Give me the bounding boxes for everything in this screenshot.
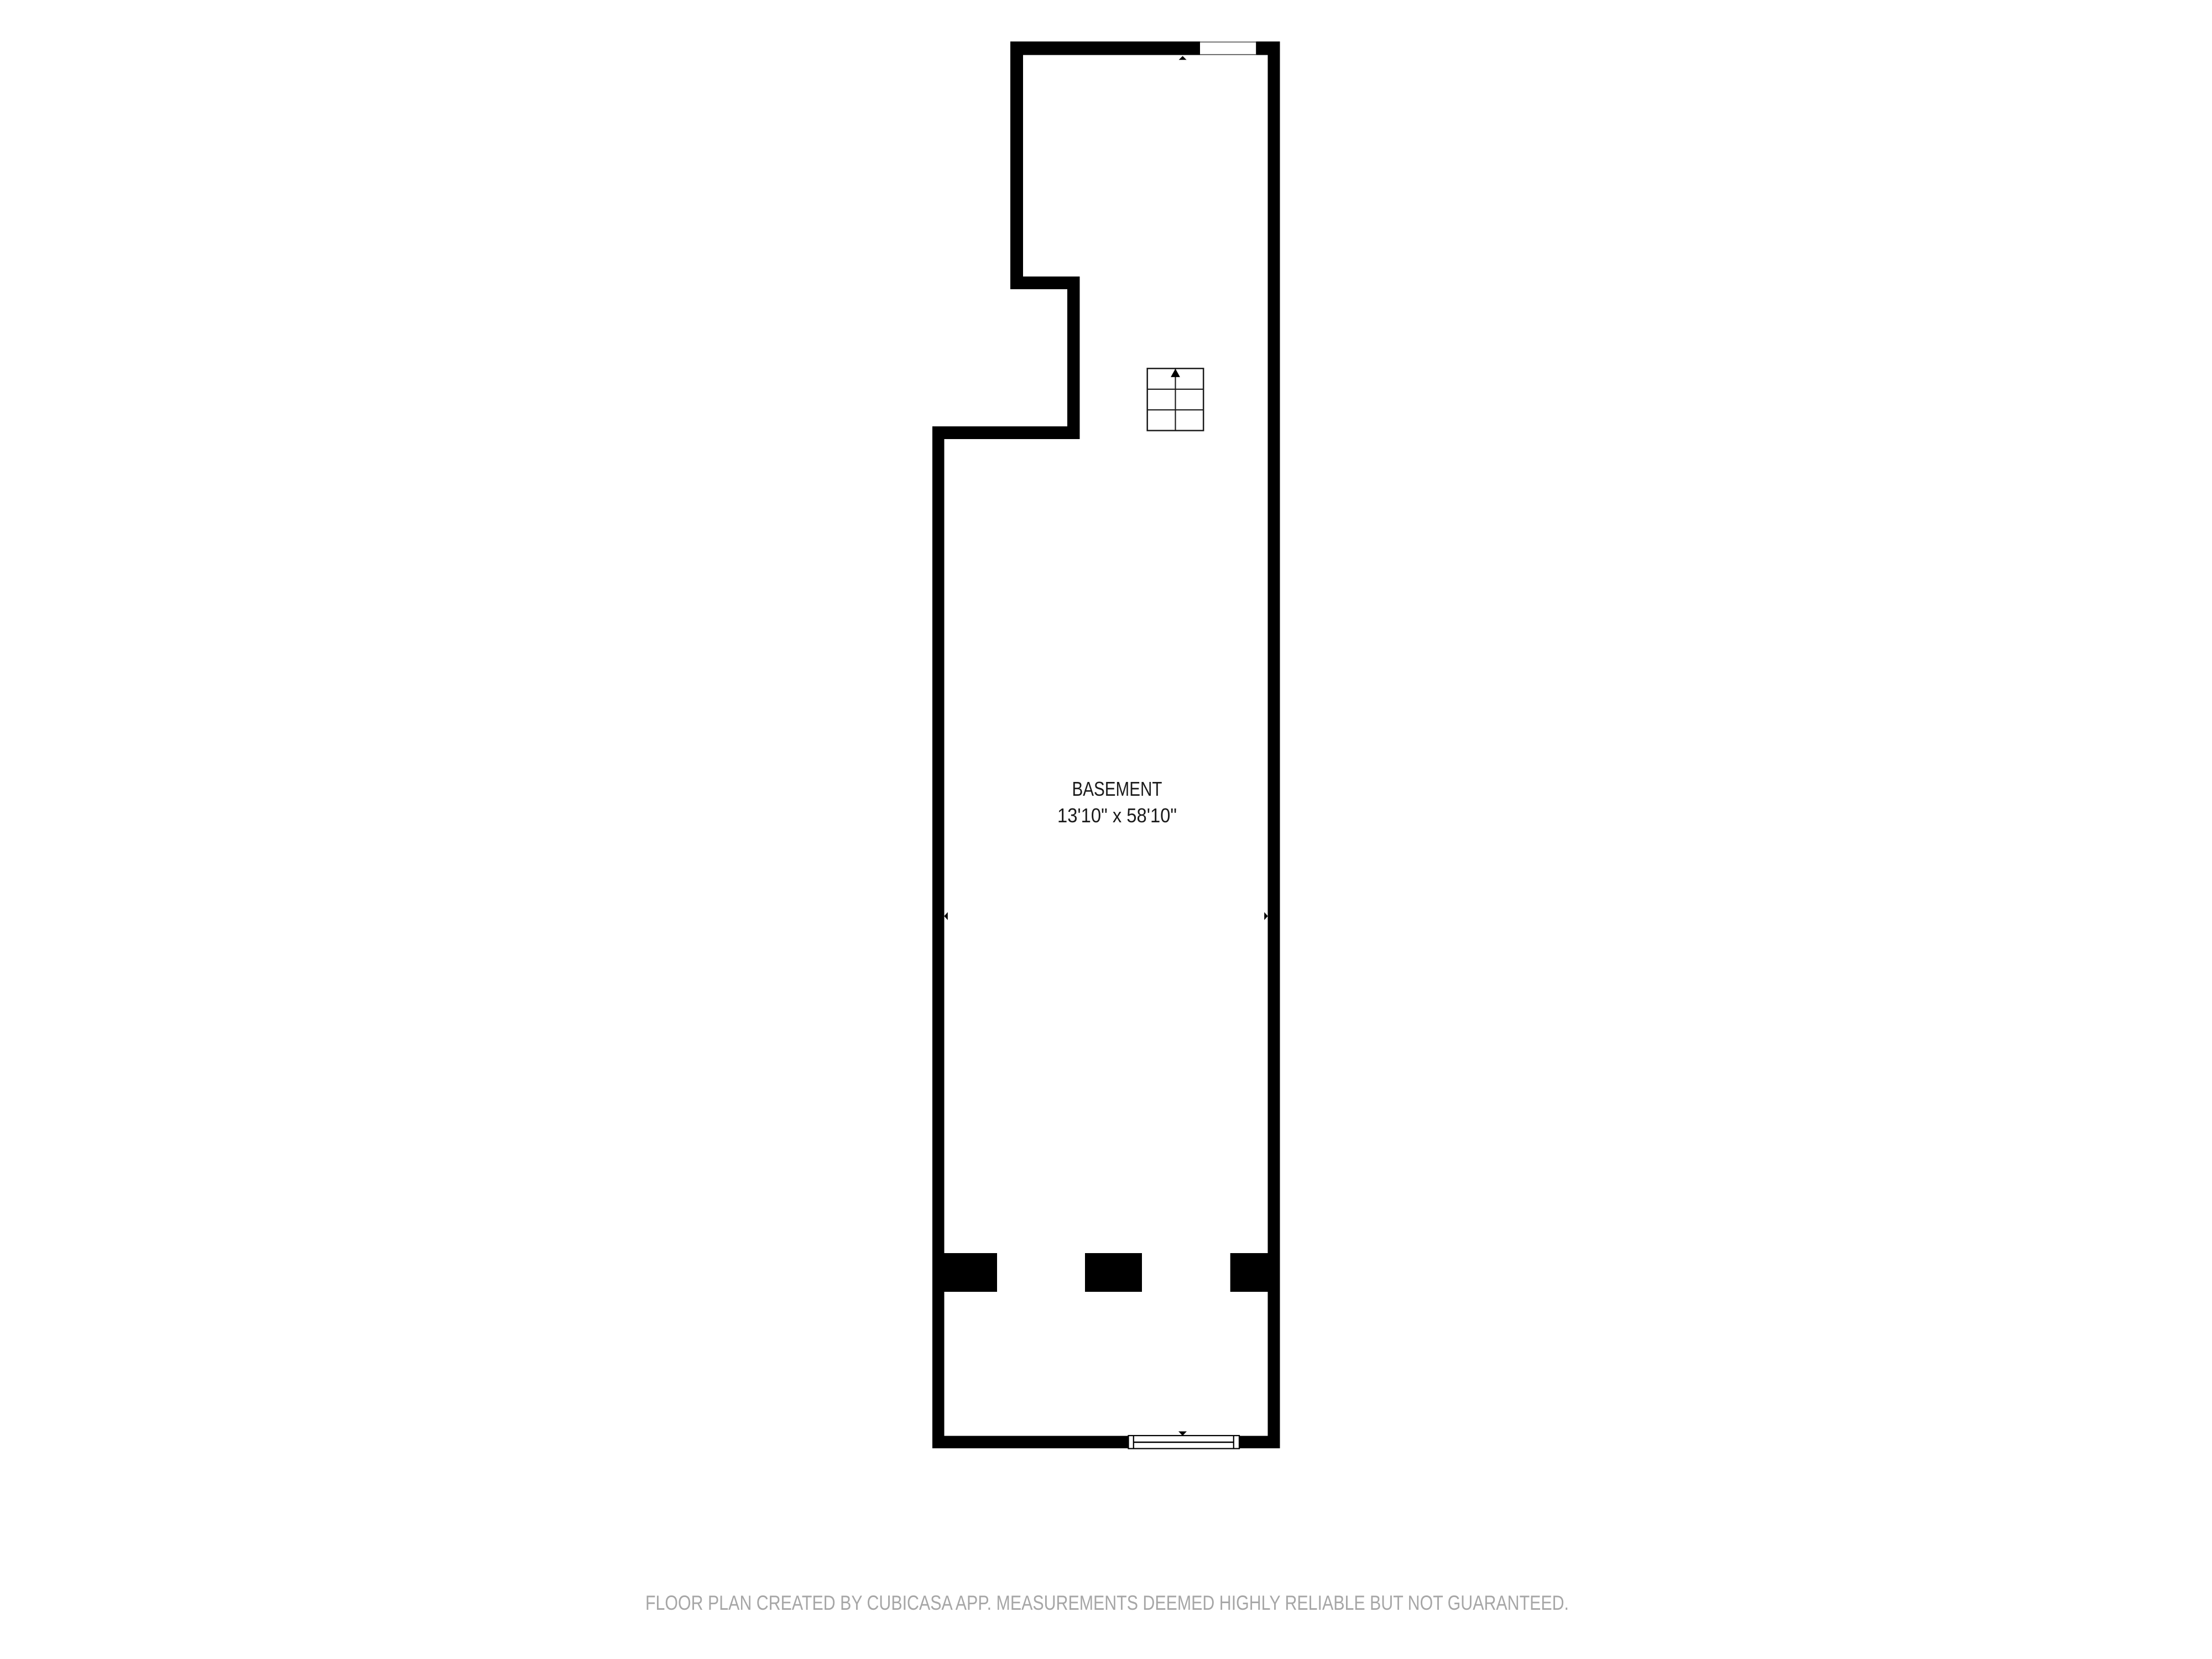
svg-text:FLOOR PLAN CREATED BY CUBICASA: FLOOR PLAN CREATED BY CUBICASA APP. MEAS… [645, 1591, 1569, 1614]
svg-text:13'10" x 58'10": 13'10" x 58'10" [1057, 804, 1177, 827]
svg-text:BASEMENT: BASEMENT [1072, 778, 1162, 800]
